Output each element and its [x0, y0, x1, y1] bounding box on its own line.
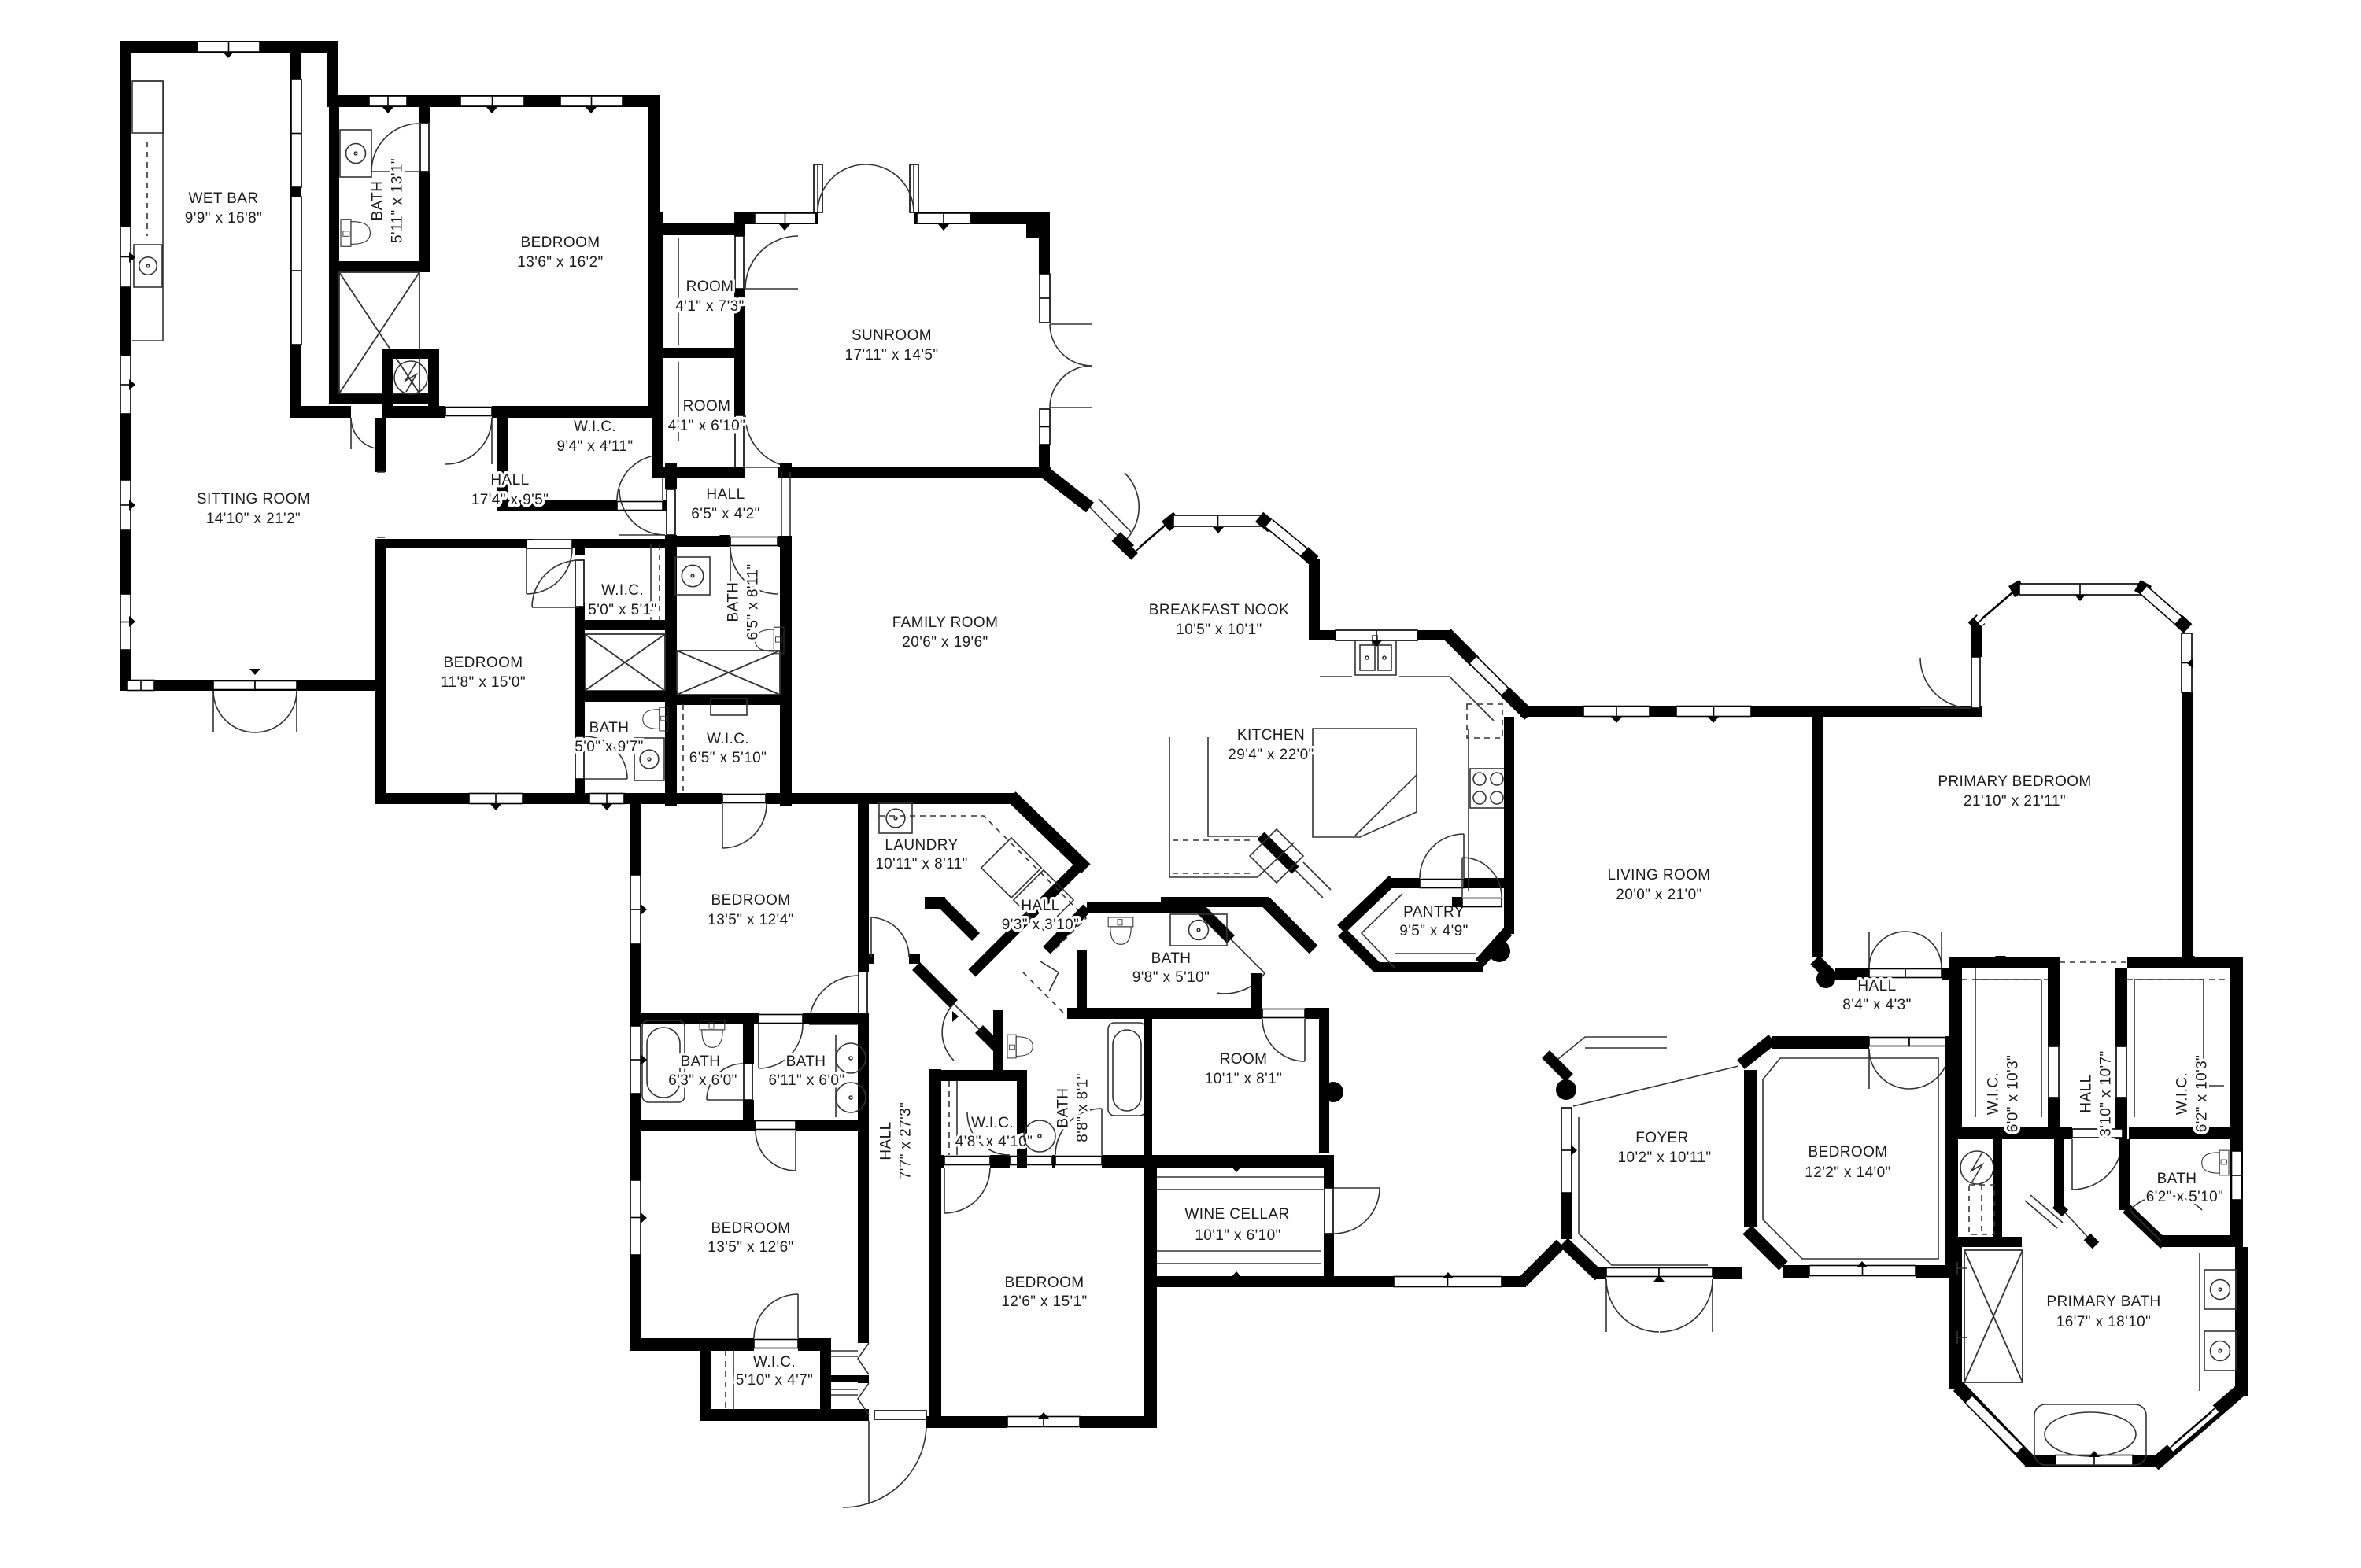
svg-text:BEDROOM: BEDROOM [1005, 1275, 1084, 1291]
svg-text:10'1" x 6'10": 10'1" x 6'10" [1195, 1227, 1280, 1244]
svg-text:HALL: HALL [706, 486, 745, 503]
svg-text:W.I.C.: W.I.C. [1986, 1072, 2002, 1115]
svg-text:17'4" x 9'5": 17'4" x 9'5" [471, 492, 549, 508]
svg-text:W.I.C.: W.I.C. [707, 731, 749, 747]
svg-text:BATH: BATH [2157, 1171, 2197, 1187]
svg-text:9'8" x 5'10": 9'8" x 5'10" [1132, 969, 1210, 986]
svg-text:BEDROOM: BEDROOM [711, 892, 791, 909]
svg-text:PRIMARY BATH: PRIMARY BATH [2046, 1293, 2160, 1310]
svg-text:9'3" x 3'10": 9'3" x 3'10" [1002, 917, 1079, 933]
svg-text:14'10" x 21'2": 14'10" x 21'2" [206, 511, 301, 527]
svg-text:PRIMARY BEDROOM: PRIMARY BEDROOM [1938, 773, 2091, 790]
svg-text:17'11" x 14'5": 17'11" x 14'5" [845, 347, 939, 363]
svg-text:W.I.C.: W.I.C. [753, 1354, 796, 1371]
svg-text:BATH: BATH [1151, 950, 1192, 967]
svg-text:5'0" x 9'7": 5'0" x 9'7" [575, 739, 643, 755]
svg-text:10'2" x 10'11": 10'2" x 10'11" [1618, 1149, 1712, 1166]
svg-text:12'6" x 15'1": 12'6" x 15'1" [1001, 1293, 1087, 1310]
svg-text:SUNROOM: SUNROOM [852, 327, 932, 344]
svg-text:KITCHEN: KITCHEN [1237, 727, 1305, 743]
svg-text:ROOM: ROOM [1220, 1051, 1268, 1068]
svg-text:BEDROOM: BEDROOM [444, 655, 523, 671]
svg-text:6'11" x 6'0": 6'11" x 6'0" [768, 1072, 844, 1089]
svg-text:5'10" x 4'7": 5'10" x 4'7" [736, 1372, 813, 1389]
svg-text:BEDROOM: BEDROOM [1809, 1144, 1888, 1160]
svg-text:BATH: BATH [726, 582, 742, 622]
svg-text:9'4" x 4'11": 9'4" x 4'11" [556, 438, 633, 455]
svg-text:FAMILY ROOM: FAMILY ROOM [892, 614, 999, 631]
svg-text:BATH: BATH [1055, 1088, 1072, 1128]
svg-text:10'5" x 10'1": 10'5" x 10'1" [1176, 622, 1262, 638]
svg-text:8'4" x 4'3": 8'4" x 4'3" [1842, 997, 1911, 1013]
svg-text:BATH: BATH [589, 720, 630, 736]
svg-text:6'2" x 10'3": 6'2" x 10'3" [2194, 1055, 2211, 1132]
svg-text:HALL: HALL [490, 472, 529, 489]
svg-text:3'10" x 10'7": 3'10" x 10'7" [2098, 1050, 2115, 1136]
svg-text:20'0" x 21'0": 20'0" x 21'0" [1616, 887, 1701, 903]
svg-text:BATH: BATH [370, 181, 386, 221]
svg-text:7'7" x 27'3": 7'7" x 27'3" [898, 1102, 914, 1179]
svg-text:W.I.C.: W.I.C. [971, 1115, 1014, 1131]
svg-text:BATH: BATH [786, 1053, 826, 1070]
svg-text:6'0" x 10'3": 6'0" x 10'3" [2005, 1055, 2022, 1132]
svg-text:13'5" x 12'4": 13'5" x 12'4" [708, 912, 793, 928]
svg-text:5'11" x 13'1": 5'11" x 13'1" [390, 158, 406, 243]
svg-text:BREAKFAST NOOK: BREAKFAST NOOK [1149, 602, 1289, 618]
svg-text:8'8" x 8'1": 8'8" x 8'1" [1075, 1073, 1092, 1142]
svg-text:ROOM: ROOM [686, 279, 734, 295]
svg-text:9'5" x 4'9": 9'5" x 4'9" [1399, 923, 1468, 939]
svg-text:4'1" x 6'10": 4'1" x 6'10" [668, 418, 745, 434]
svg-text:12'2" x 14'0": 12'2" x 14'0" [1805, 1164, 1890, 1181]
svg-text:10'1" x 8'1": 10'1" x 8'1" [1205, 1071, 1282, 1087]
svg-text:HALL: HALL [2078, 1074, 2095, 1112]
svg-text:13'5" x 12'6": 13'5" x 12'6" [708, 1239, 793, 1256]
svg-text:10'11" x 8'11": 10'11" x 8'11" [875, 856, 968, 873]
svg-text:BATH: BATH [681, 1053, 721, 1070]
svg-text:W.I.C.: W.I.C. [601, 582, 644, 599]
svg-text:9'9" x 16'8": 9'9" x 16'8" [185, 210, 262, 227]
svg-text:6'5" x 8'11": 6'5" x 8'11" [745, 563, 762, 640]
svg-text:4'1" x 7'3": 4'1" x 7'3" [675, 298, 744, 315]
svg-text:BEDROOM: BEDROOM [711, 1220, 791, 1237]
svg-text:HALL: HALL [1857, 978, 1896, 994]
svg-text:LAUNDRY: LAUNDRY [885, 837, 958, 854]
svg-text:SITTING ROOM: SITTING ROOM [197, 491, 310, 507]
svg-text:13'6" x 16'2": 13'6" x 16'2" [517, 254, 603, 271]
svg-text:6'5" x 5'10": 6'5" x 5'10" [689, 750, 767, 766]
svg-text:20'6" x 19'6": 20'6" x 19'6" [902, 634, 988, 651]
svg-text:HALL: HALL [1021, 898, 1059, 914]
svg-text:LIVING ROOM: LIVING ROOM [1607, 867, 1710, 884]
svg-text:W.I.C.: W.I.C. [2174, 1072, 2191, 1115]
svg-text:21'10" x 21'11": 21'10" x 21'11" [1964, 793, 2066, 810]
svg-text:W.I.C.: W.I.C. [574, 419, 616, 435]
svg-text:BEDROOM: BEDROOM [521, 234, 600, 251]
svg-text:5'0" x 5'1": 5'0" x 5'1" [588, 602, 656, 618]
svg-text:16'7" x 18'10": 16'7" x 18'10" [2056, 1314, 2151, 1330]
svg-text:ROOM: ROOM [683, 398, 731, 415]
svg-text:HALL: HALL [878, 1121, 895, 1160]
svg-text:WINE CELLAR: WINE CELLAR [1184, 1206, 1289, 1223]
svg-text:FOYER: FOYER [1635, 1130, 1688, 1146]
svg-text:4'8" x 4'10": 4'8" x 4'10" [955, 1134, 1033, 1150]
svg-text:6'3" x 6'0": 6'3" x 6'0" [668, 1072, 737, 1089]
svg-text:6'5" x 4'2": 6'5" x 4'2" [691, 506, 759, 522]
svg-text:29'4" x 22'0": 29'4" x 22'0" [1228, 747, 1314, 763]
svg-text:6'2" x 5'10": 6'2" x 5'10" [2146, 1189, 2223, 1205]
svg-text:WET BAR: WET BAR [188, 190, 258, 207]
svg-text:11'8" x 15'0": 11'8" x 15'0" [441, 674, 526, 691]
